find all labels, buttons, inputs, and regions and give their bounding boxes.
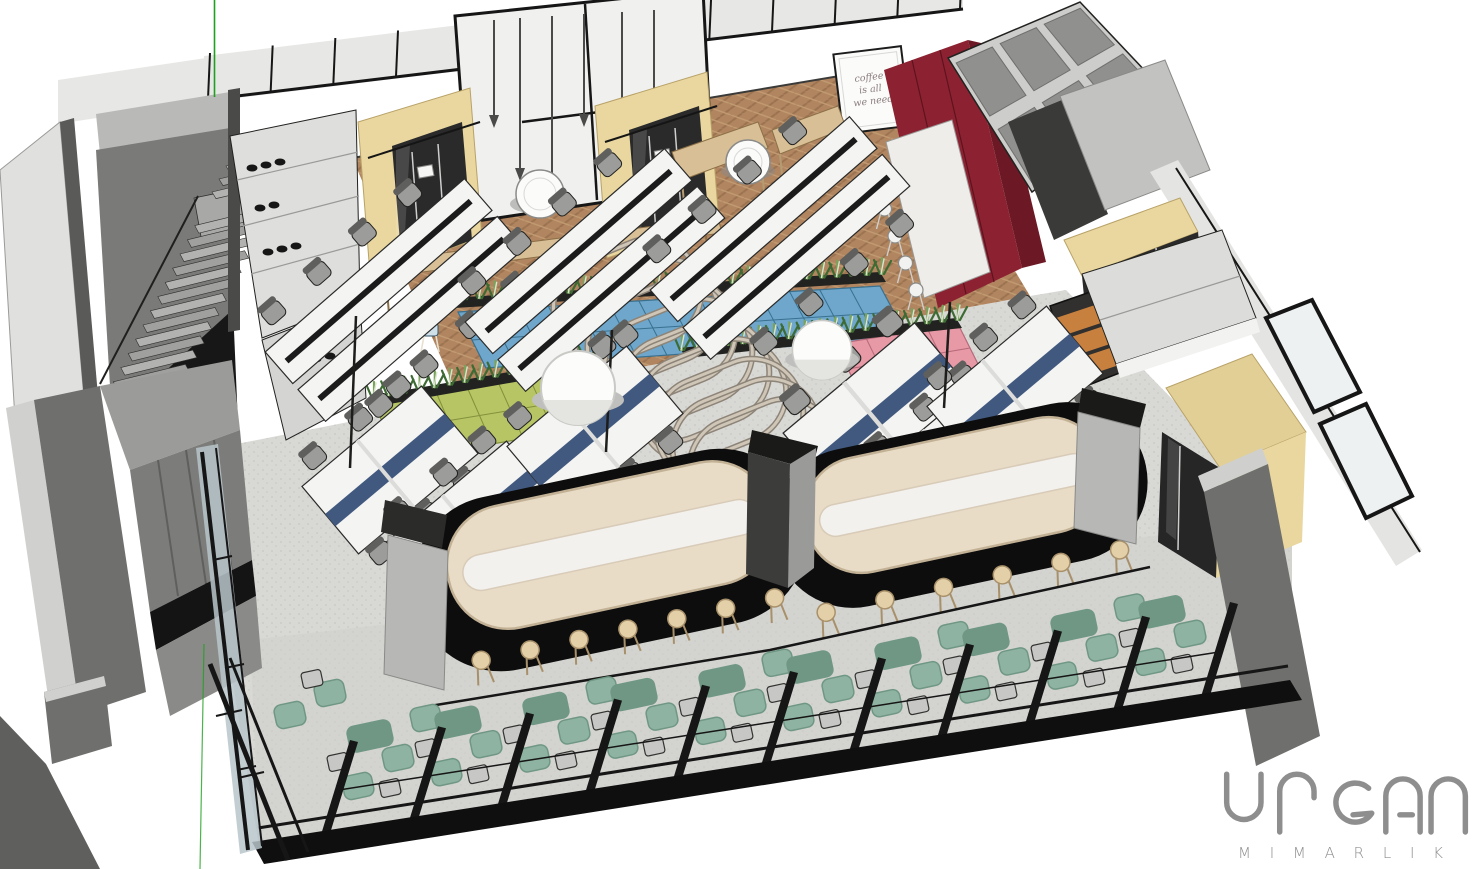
render-canvas: coffee is all we need (0, 0, 1473, 869)
column (746, 430, 818, 588)
column (381, 500, 448, 690)
stair-side-wall (228, 88, 240, 332)
booth-lamp (417, 165, 434, 178)
office-3d-scene: coffee is all we need (0, 0, 1473, 869)
column (1074, 388, 1146, 544)
logo: M I M A R L I K (1227, 774, 1466, 862)
logo-subtitle: M I M A R L I K (1238, 844, 1450, 862)
side-table (301, 669, 324, 689)
logo-wordmark (1227, 774, 1466, 832)
